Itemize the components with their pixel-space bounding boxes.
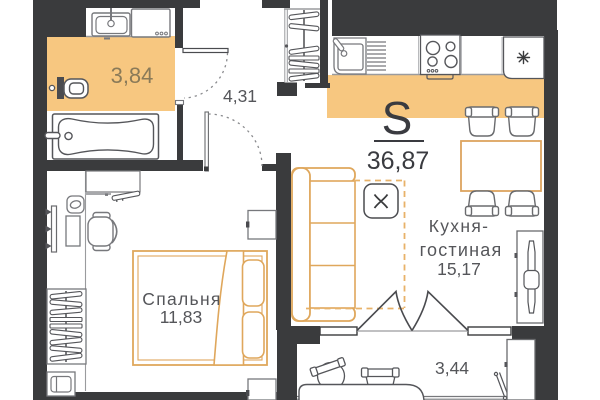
svg-text:Спальня: Спальня: [142, 289, 221, 309]
svg-text:гостиная: гостиная: [420, 240, 503, 260]
svg-text:4,31: 4,31: [223, 86, 257, 106]
svg-text:36,87: 36,87: [367, 147, 430, 175]
svg-text:3,84: 3,84: [111, 63, 154, 88]
svg-text:Кухня-: Кухня-: [429, 216, 489, 236]
svg-text:S: S: [382, 92, 413, 144]
svg-text:3,44: 3,44: [435, 358, 469, 378]
svg-text:15,17: 15,17: [437, 259, 481, 279]
svg-text:11,83: 11,83: [160, 307, 203, 327]
